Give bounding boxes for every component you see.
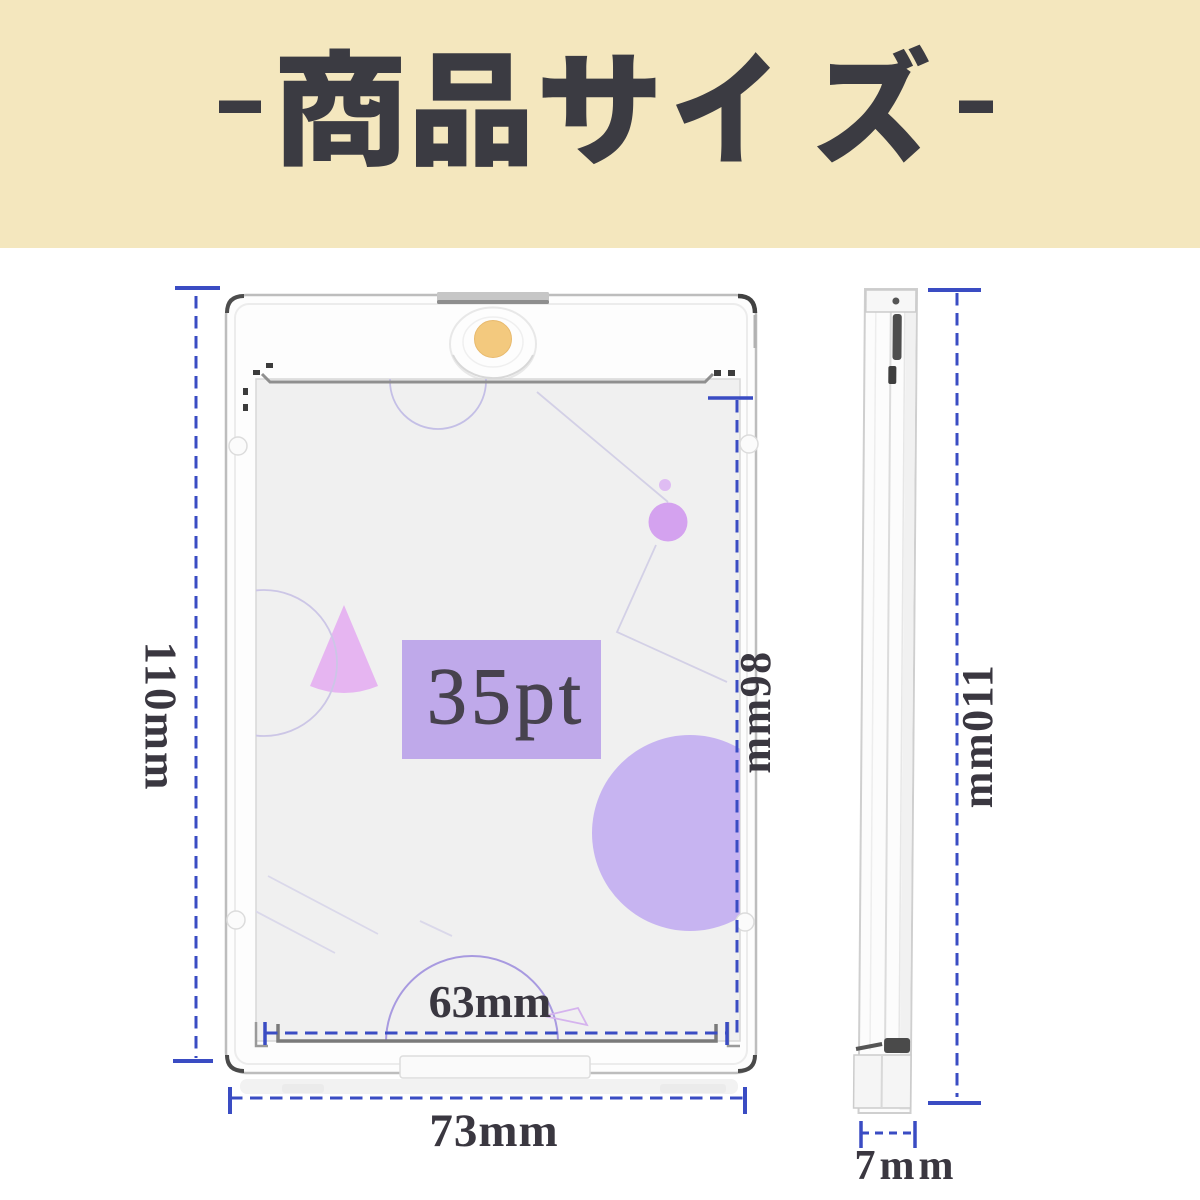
svg-text:35pt: 35pt [427,653,585,741]
svg-text:73mm: 73mm [429,1105,558,1157]
svg-text:mm011: mm011 [953,664,1002,808]
svg-text:mm98: mm98 [731,650,780,773]
svg-text:7mm: 7mm [855,1143,958,1189]
svg-text:110mm: 110mm [136,642,186,792]
svg-text:63mm: 63mm [429,976,552,1027]
